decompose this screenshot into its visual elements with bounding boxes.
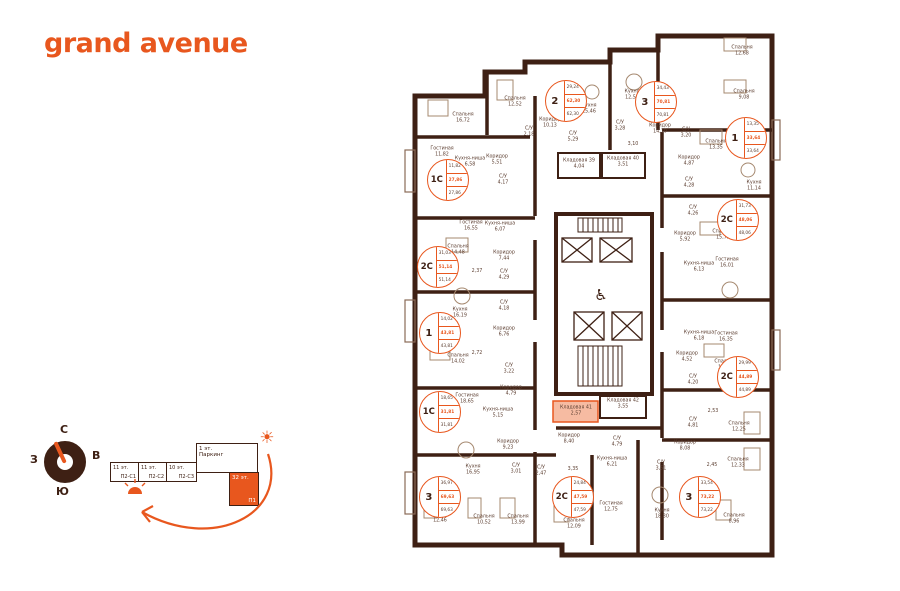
apartment-badge[interactable]: 336,9769,6369,63 bbox=[419, 476, 461, 518]
apartment-badge[interactable]: 114,0243,8143,81 bbox=[419, 312, 461, 354]
apartment-badges-layer: 1С11,8227,8627,86229,2462,3062,30334,437… bbox=[0, 0, 900, 591]
apartment-badge[interactable]: 1С11,8227,8627,86 bbox=[427, 159, 469, 201]
apartment-badge[interactable]: 333,5473,2273,22 bbox=[679, 476, 721, 518]
apartment-badge[interactable]: 1С18,6531,8131,81 bbox=[419, 391, 461, 433]
apartment-badge[interactable]: 2С24,8447,5947,59 bbox=[552, 476, 594, 518]
apartment-badge[interactable]: 2С31,7348,0648,06 bbox=[717, 199, 759, 241]
apartment-badge[interactable]: 113,3533,6433,64 bbox=[725, 117, 767, 159]
apartment-badge[interactable]: 229,2462,3062,30 bbox=[545, 80, 587, 122]
page: grand avenue С В З Ю 11 эт. П2-С1 11 эт.… bbox=[0, 0, 900, 591]
apartment-badge[interactable]: 334,4370,8170,81 bbox=[635, 81, 677, 123]
apartment-badge[interactable]: 2С31,0351,1451,14 bbox=[417, 246, 459, 288]
apartment-badge[interactable]: 2С29,9944,8944,89 bbox=[717, 356, 759, 398]
